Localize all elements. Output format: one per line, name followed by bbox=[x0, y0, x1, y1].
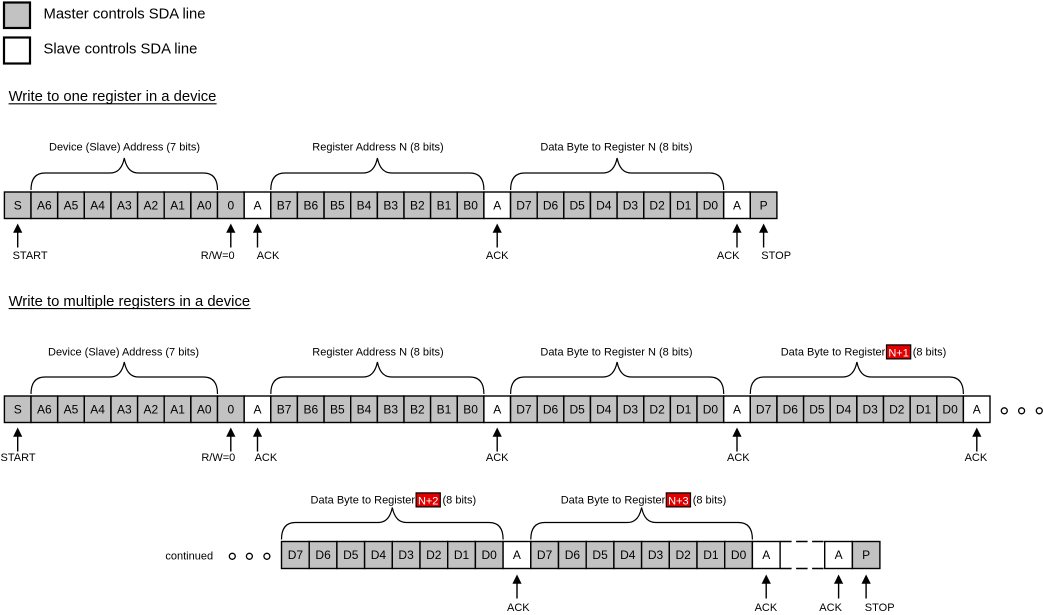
svg-text:D4: D4 bbox=[620, 548, 636, 562]
svg-text:Data Byte to Register: Data Byte to Register bbox=[311, 495, 416, 507]
svg-text:B7: B7 bbox=[277, 198, 292, 212]
svg-text:B3: B3 bbox=[383, 198, 398, 212]
svg-text:R/W=0: R/W=0 bbox=[201, 452, 235, 464]
svg-text:A: A bbox=[493, 198, 501, 212]
svg-text:A: A bbox=[253, 402, 261, 416]
svg-text:D5: D5 bbox=[570, 198, 586, 212]
svg-text:D2: D2 bbox=[649, 402, 665, 416]
svg-text:B1: B1 bbox=[437, 198, 452, 212]
svg-text:ACK: ACK bbox=[965, 452, 988, 464]
svg-text:D2: D2 bbox=[889, 402, 905, 416]
svg-text:P: P bbox=[760, 198, 768, 212]
svg-text:D2: D2 bbox=[649, 198, 665, 212]
svg-text:0: 0 bbox=[227, 402, 234, 416]
svg-text:START: START bbox=[13, 250, 48, 262]
svg-text:D0: D0 bbox=[703, 198, 719, 212]
svg-text:D4: D4 bbox=[596, 198, 612, 212]
svg-text:A6: A6 bbox=[37, 198, 52, 212]
svg-text:A6: A6 bbox=[37, 402, 52, 416]
svg-text:Register Address N (8 bits): Register Address N (8 bits) bbox=[312, 142, 443, 154]
svg-text:B6: B6 bbox=[303, 402, 318, 416]
svg-text:D1: D1 bbox=[454, 548, 470, 562]
svg-text:D7: D7 bbox=[756, 402, 772, 416]
svg-text:D5: D5 bbox=[809, 402, 825, 416]
svg-text:Data Byte to Register N (8 bit: Data Byte to Register N (8 bits) bbox=[540, 142, 692, 154]
svg-text:A2: A2 bbox=[144, 402, 159, 416]
svg-text:B1: B1 bbox=[437, 402, 452, 416]
svg-text:D5: D5 bbox=[570, 402, 586, 416]
svg-text:D6: D6 bbox=[315, 548, 331, 562]
svg-text:D3: D3 bbox=[863, 402, 879, 416]
svg-text:(8 bits): (8 bits) bbox=[913, 347, 947, 359]
svg-text:D1: D1 bbox=[676, 402, 692, 416]
svg-text:D0: D0 bbox=[703, 402, 719, 416]
svg-text:Device (Slave) Address (7 bits: Device (Slave) Address (7 bits) bbox=[49, 142, 200, 154]
svg-text:N+2: N+2 bbox=[418, 496, 439, 508]
svg-text:A: A bbox=[973, 402, 981, 416]
svg-text:D4: D4 bbox=[836, 402, 852, 416]
svg-text:ACK: ACK bbox=[727, 452, 750, 464]
svg-text:Data Byte to Register N (8 bit: Data Byte to Register N (8 bits) bbox=[540, 347, 692, 359]
svg-text:ACK: ACK bbox=[486, 250, 509, 262]
svg-text:D2: D2 bbox=[676, 548, 692, 562]
svg-text:B0: B0 bbox=[463, 402, 478, 416]
svg-text:D6: D6 bbox=[543, 198, 559, 212]
svg-text:A0: A0 bbox=[197, 402, 212, 416]
svg-text:B0: B0 bbox=[463, 198, 478, 212]
svg-text:D1: D1 bbox=[703, 548, 719, 562]
svg-text:(8 bits): (8 bits) bbox=[443, 495, 477, 507]
svg-text:A: A bbox=[733, 198, 741, 212]
svg-text:START: START bbox=[1, 452, 36, 464]
svg-text:Slave controls SDA line: Slave controls SDA line bbox=[44, 42, 198, 58]
svg-text:D2: D2 bbox=[426, 548, 442, 562]
svg-text:B6: B6 bbox=[303, 198, 318, 212]
svg-text:D5: D5 bbox=[592, 548, 608, 562]
svg-text:0: 0 bbox=[227, 198, 234, 212]
svg-text:A: A bbox=[762, 548, 770, 562]
svg-text:D7: D7 bbox=[537, 548, 553, 562]
svg-text:D3: D3 bbox=[398, 548, 414, 562]
svg-text:N+3: N+3 bbox=[668, 496, 689, 508]
svg-text:A: A bbox=[835, 548, 843, 562]
svg-text:A: A bbox=[493, 402, 501, 416]
svg-text:D4: D4 bbox=[596, 402, 612, 416]
svg-text:D3: D3 bbox=[623, 402, 639, 416]
svg-text:B2: B2 bbox=[410, 198, 425, 212]
svg-text:D3: D3 bbox=[623, 198, 639, 212]
svg-text:D6: D6 bbox=[783, 402, 799, 416]
svg-text:B5: B5 bbox=[330, 402, 345, 416]
svg-text:continued: continued bbox=[165, 551, 213, 563]
svg-text:B5: B5 bbox=[330, 198, 345, 212]
svg-text:A4: A4 bbox=[90, 198, 105, 212]
svg-text:ACK: ACK bbox=[755, 602, 778, 614]
svg-text:D5: D5 bbox=[343, 548, 359, 562]
svg-text:D1: D1 bbox=[676, 198, 692, 212]
svg-text:N+1: N+1 bbox=[888, 348, 909, 360]
svg-text:A0: A0 bbox=[197, 198, 212, 212]
svg-text:A3: A3 bbox=[117, 198, 132, 212]
svg-text:ACK: ACK bbox=[717, 250, 740, 262]
svg-text:A5: A5 bbox=[64, 198, 79, 212]
svg-text:B7: B7 bbox=[277, 402, 292, 416]
svg-text:B3: B3 bbox=[383, 402, 398, 416]
svg-text:D7: D7 bbox=[288, 548, 304, 562]
svg-text:B2: B2 bbox=[410, 402, 425, 416]
svg-text:Write to one register in a dev: Write to one register in a device bbox=[9, 89, 217, 105]
svg-text:D4: D4 bbox=[371, 548, 387, 562]
svg-text:Data Byte to Register: Data Byte to Register bbox=[781, 347, 886, 359]
svg-text:A: A bbox=[733, 402, 741, 416]
svg-text:A3: A3 bbox=[117, 402, 132, 416]
svg-text:ACK: ACK bbox=[819, 602, 842, 614]
svg-text:S: S bbox=[14, 402, 22, 416]
svg-text:D7: D7 bbox=[516, 198, 532, 212]
svg-text:A4: A4 bbox=[90, 402, 105, 416]
svg-text:A5: A5 bbox=[64, 402, 79, 416]
svg-text:A1: A1 bbox=[170, 198, 185, 212]
svg-text:D3: D3 bbox=[648, 548, 664, 562]
svg-text:Register Address N (8 bits): Register Address N (8 bits) bbox=[312, 347, 443, 359]
svg-text:Device (Slave) Address (7 bits: Device (Slave) Address (7 bits) bbox=[48, 347, 199, 359]
svg-text:D6: D6 bbox=[543, 402, 559, 416]
svg-text:Data Byte to Register: Data Byte to Register bbox=[561, 495, 666, 507]
svg-text:D6: D6 bbox=[565, 548, 581, 562]
svg-text:(8 bits): (8 bits) bbox=[693, 495, 727, 507]
svg-text:R/W=0: R/W=0 bbox=[201, 250, 235, 262]
svg-text:D0: D0 bbox=[942, 402, 958, 416]
svg-text:D7: D7 bbox=[516, 402, 532, 416]
svg-text:A2: A2 bbox=[144, 198, 159, 212]
svg-text:Master controls SDA line: Master controls SDA line bbox=[44, 7, 206, 23]
svg-text:ACK: ACK bbox=[257, 250, 280, 262]
svg-text:B4: B4 bbox=[357, 402, 372, 416]
svg-text:A: A bbox=[253, 198, 261, 212]
svg-text:ACK: ACK bbox=[255, 452, 278, 464]
svg-text:ACK: ACK bbox=[507, 602, 530, 614]
svg-text:D1: D1 bbox=[916, 402, 932, 416]
svg-text:A: A bbox=[513, 548, 521, 562]
svg-text:P: P bbox=[862, 548, 870, 562]
svg-text:B4: B4 bbox=[357, 198, 372, 212]
svg-text:D0: D0 bbox=[731, 548, 747, 562]
svg-text:STOP: STOP bbox=[865, 602, 895, 614]
svg-text:S: S bbox=[14, 198, 22, 212]
svg-text:Write to multiple registers in: Write to multiple registers in a device bbox=[9, 294, 251, 310]
svg-text:ACK: ACK bbox=[486, 452, 509, 464]
svg-text:A1: A1 bbox=[170, 402, 185, 416]
svg-text:D0: D0 bbox=[482, 548, 498, 562]
svg-text:STOP: STOP bbox=[761, 250, 791, 262]
